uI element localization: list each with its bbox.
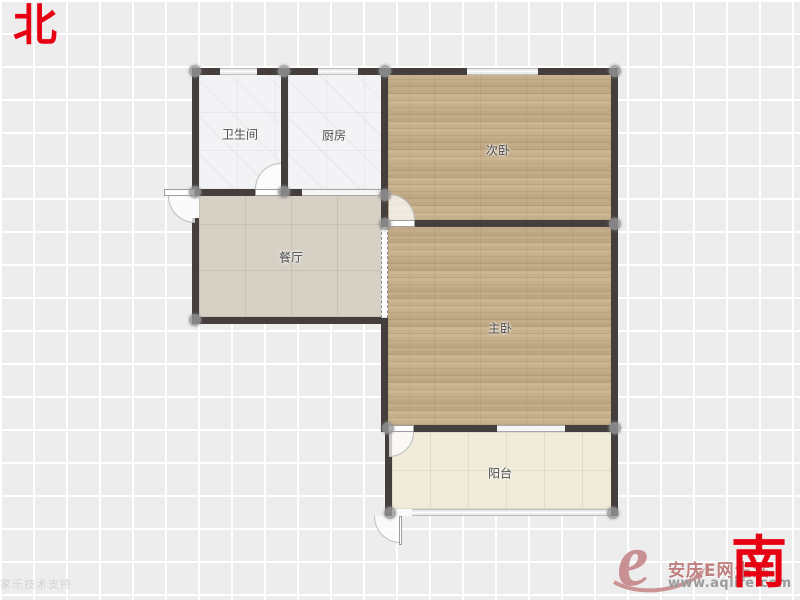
compass-south-label: 南 <box>731 536 787 592</box>
wall-right <box>611 75 618 516</box>
compass-north-label: 北 <box>13 4 57 48</box>
master-bedroom-label: 主卧 <box>488 320 512 337</box>
slider-kitchen-dining <box>302 189 381 196</box>
wall-joint-dot <box>278 65 290 77</box>
wall-bedroom2-left <box>381 75 388 227</box>
wall-bath-kitchen-divider <box>281 75 288 196</box>
exterior-door-leaf[interactable] <box>399 516 402 545</box>
balcony-label: 阳台 <box>488 465 512 482</box>
window-secondary-bedroom <box>467 68 538 75</box>
kitchen-label: 厨房 <box>322 127 346 144</box>
wall-joint-dot <box>607 507 619 519</box>
wall-dining-bottom <box>192 317 388 324</box>
bathroom-label: 卫生间 <box>222 126 258 143</box>
wall-master-left-lower <box>381 317 388 432</box>
wall-under-bathroom <box>192 189 257 196</box>
window-balcony <box>392 509 611 516</box>
wall-bedroom-divider <box>414 220 611 227</box>
wall-joint-dot <box>379 65 391 77</box>
wall-joint-dot <box>189 65 201 77</box>
wall-joint-dot <box>384 507 396 519</box>
entry-door-swing-arc <box>168 196 195 223</box>
wall-left-upper <box>192 68 199 196</box>
window-bathroom <box>220 68 257 75</box>
opening-dining-master-dashed <box>381 227 388 318</box>
wall-dining-left <box>192 218 199 324</box>
support-watermark: 酷家乐技术支持 <box>0 576 72 592</box>
slider-master-balcony <box>497 425 565 432</box>
wall-joint-dot <box>609 218 621 230</box>
wall-joint-dot <box>189 314 201 326</box>
wall-joint-dot <box>278 186 290 198</box>
wall-joint-dot <box>382 422 394 434</box>
wall-joint-dot <box>379 218 391 230</box>
secondary-bedroom-door-leaf[interactable] <box>388 220 415 227</box>
wall-joint-dot <box>189 186 201 198</box>
secondary-bedroom-label: 次卧 <box>486 142 510 159</box>
wall-joint-dot <box>609 65 621 77</box>
wall-master-balcony-left <box>414 425 497 432</box>
window-kitchen <box>318 68 358 75</box>
exterior-door-swing-arc <box>374 516 400 543</box>
floorplan-canvas: 北 南 <box>0 0 800 600</box>
wall-joint-dot <box>379 189 391 201</box>
dining-label: 餐厅 <box>279 249 303 266</box>
wall-joint-dot <box>609 422 621 434</box>
logo-e-letter: e <box>612 522 652 599</box>
